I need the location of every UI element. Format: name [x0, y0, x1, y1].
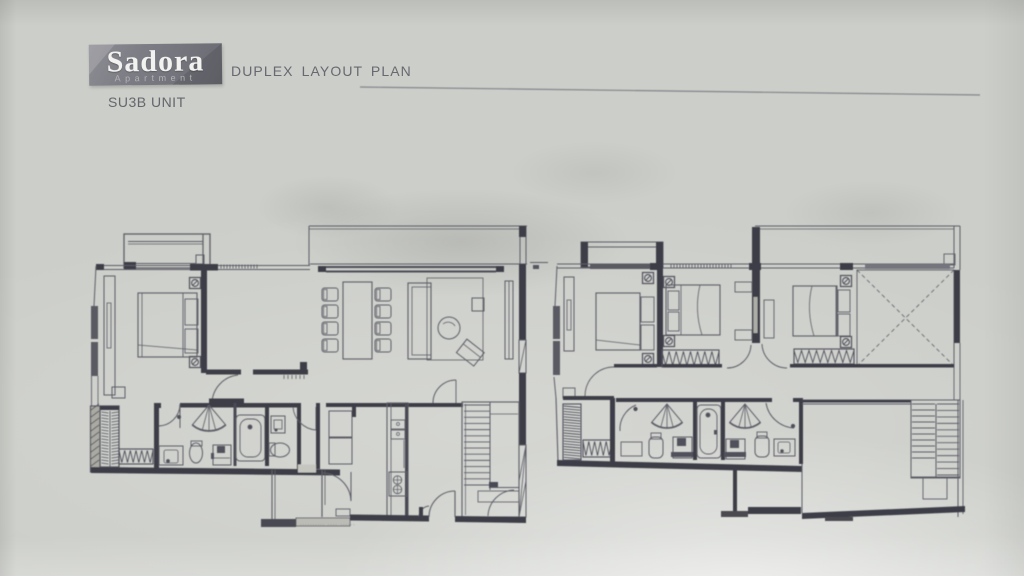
svg-text:.......... .... ......: .......... .... ...... — [300, 521, 356, 527]
